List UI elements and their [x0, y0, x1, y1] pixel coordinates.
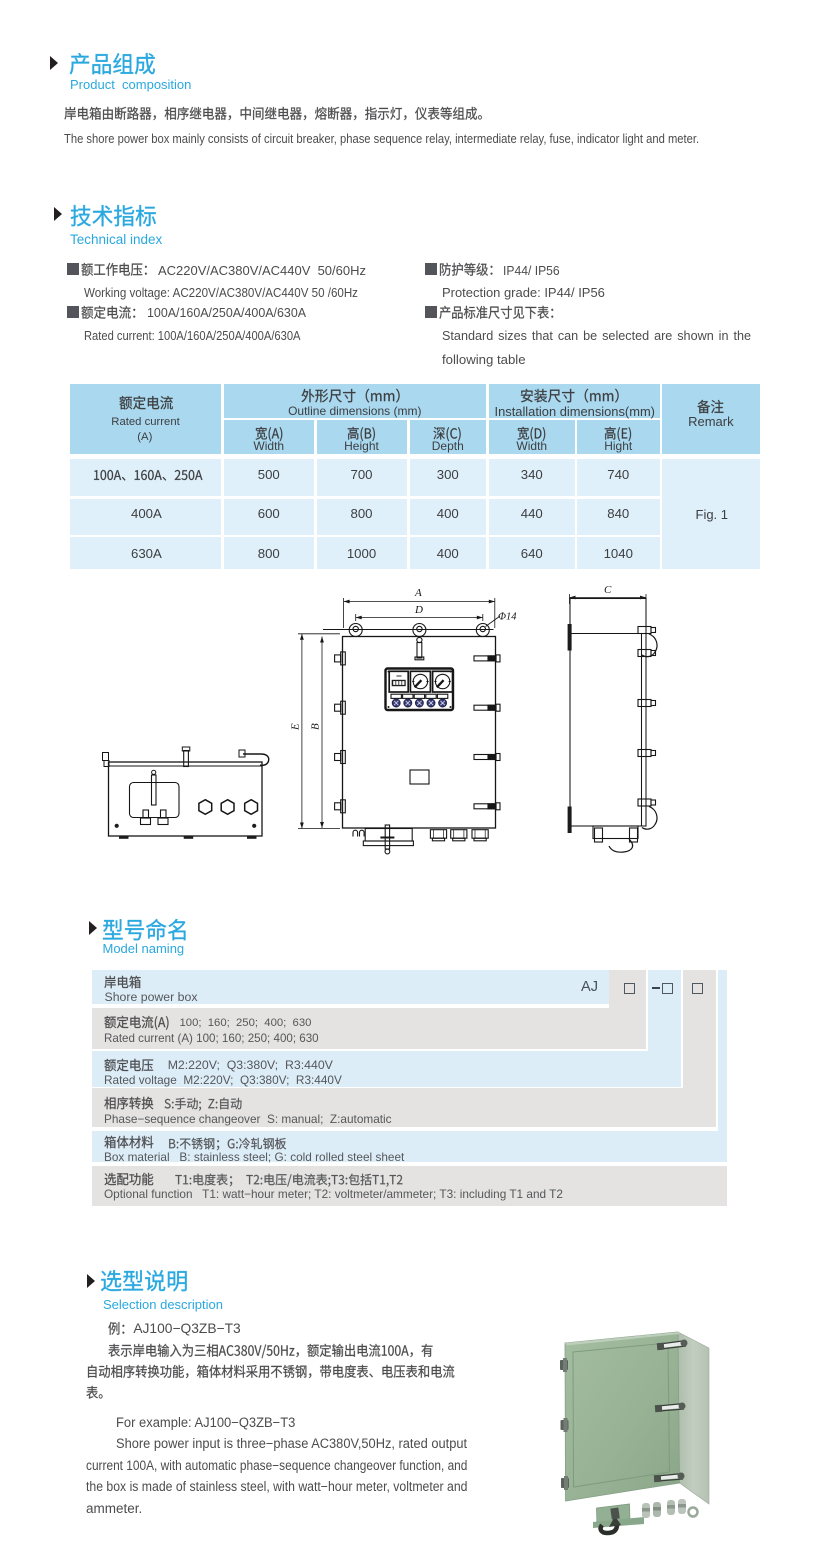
- svg-text:D: D: [414, 604, 423, 616]
- svg-text:E: E: [290, 723, 302, 731]
- svg-text:A: A: [414, 587, 422, 599]
- svg-text:B: B: [310, 723, 322, 730]
- svg-text:Φ14: Φ14: [498, 612, 517, 623]
- svg-text:C: C: [604, 584, 612, 596]
